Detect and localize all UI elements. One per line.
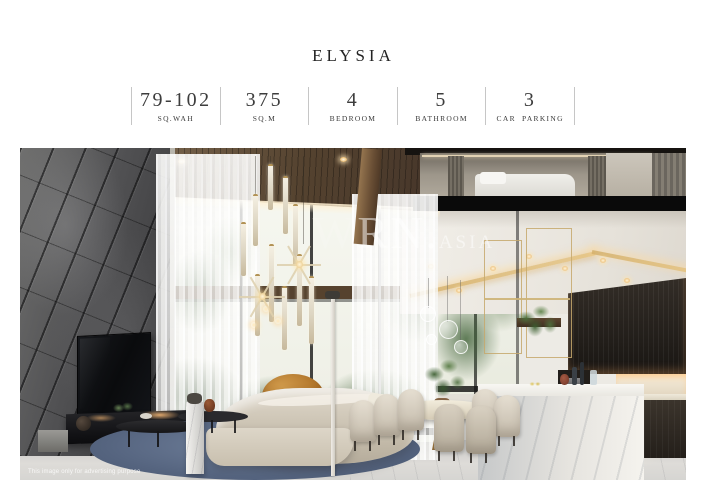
floor-lamp-head <box>325 291 340 299</box>
decor-vase <box>76 416 91 431</box>
island-bottle <box>572 367 577 385</box>
pedestal-sculpture <box>187 393 202 404</box>
spec-label: BEDROOM <box>330 114 377 123</box>
island-decanter <box>560 374 569 385</box>
coffee-table-legs <box>128 431 190 447</box>
mezzanine-curtain <box>588 156 606 200</box>
spec-label: BATHROOM <box>415 114 468 123</box>
fruit-bowl <box>528 381 542 387</box>
chandelier-glow <box>275 318 281 324</box>
chair-legs <box>470 453 492 463</box>
chandelier-glass-tube <box>268 164 273 210</box>
dining-chair <box>434 404 464 452</box>
island-carafe <box>590 370 597 385</box>
spec-value: 3 <box>524 90 537 110</box>
mezzanine-curtain <box>652 153 686 201</box>
glass-bubble-pendant <box>426 334 437 345</box>
ceiling-spotlight <box>600 258 606 263</box>
spec-label: SQ.WAH <box>158 114 194 123</box>
chair-legs <box>354 441 372 451</box>
chandelier-glass-tube <box>309 276 314 344</box>
chandelier-glow <box>251 322 257 328</box>
spec-bar: 79-102 SQ.WAH 375 SQ.M 4 BEDROOM 5 BATHR… <box>131 87 575 125</box>
listing-page: ELYSIA 79-102 SQ.WAH 375 SQ.M 4 BEDROOM … <box>0 0 707 500</box>
chandelier-bulb <box>259 293 266 300</box>
dining-chair <box>466 406 496 454</box>
dining-chair <box>398 389 424 431</box>
spec-label: SQ.M <box>253 114 276 123</box>
page-title: ELYSIA <box>0 46 707 66</box>
watermark-large-text: RN. <box>357 206 438 259</box>
glass-bubble-pendant <box>420 306 436 322</box>
pendant-wire <box>460 280 461 340</box>
marble-pedestal <box>186 402 204 474</box>
watermark-small-text: ASIA <box>439 232 495 254</box>
mezzanine-curtain <box>448 156 464 200</box>
ceiling-spotlight <box>456 288 462 293</box>
bed-pillow <box>480 172 506 184</box>
floor-lamp <box>331 298 335 476</box>
recessed-downlight <box>340 157 347 162</box>
ceiling-spotlight <box>624 278 630 283</box>
watermark-ghost-letter: W <box>312 206 357 259</box>
spec-area-sqwah: 79-102 SQ.WAH <box>131 87 220 125</box>
stone-plinth <box>38 430 68 452</box>
chair-legs <box>378 435 396 445</box>
chandelier-glow <box>263 306 269 312</box>
chair-legs <box>498 436 516 446</box>
spec-car-parking: 3 CAR PARKING <box>485 87 575 125</box>
spec-bedroom: 4 BEDROOM <box>308 87 397 125</box>
spec-value: 375 <box>246 90 284 110</box>
spec-bathroom: 5 BATHROOM <box>397 87 486 125</box>
mezzanine-wall-panel <box>606 153 652 201</box>
spec-label: CAR PARKING <box>497 114 564 123</box>
island-bottle <box>580 362 584 385</box>
pendant-wire <box>447 276 448 322</box>
chandelier-glass-tube <box>253 194 258 246</box>
table-vase <box>204 399 215 412</box>
chair-legs <box>438 451 460 461</box>
watermark: W RN. ASIA <box>312 206 495 259</box>
spec-value: 79-102 <box>140 90 212 110</box>
glass-bubble-pendant <box>439 320 458 339</box>
table-bowl <box>140 413 152 419</box>
chandelier-glass-tube <box>241 222 246 276</box>
chandelier-wire <box>303 156 304 244</box>
spec-area-sqm: 375 SQ.M <box>220 87 309 125</box>
chandelier-glass-tube <box>283 176 288 234</box>
pendant-wire <box>428 278 429 308</box>
property-photo[interactable]: W RN. ASIA This image only for advertisi… <box>20 148 686 480</box>
kitchen-upper-cabinets <box>568 278 686 374</box>
chair-legs <box>402 430 420 440</box>
decor-plant <box>112 400 134 416</box>
spec-value: 4 <box>347 90 360 110</box>
dining-chair <box>374 394 400 436</box>
photo-caption: This image only for advertising purpose <box>28 469 141 475</box>
spec-value: 5 <box>435 90 448 110</box>
tv-reflection <box>80 337 110 409</box>
hanging-shelf-frame <box>526 228 572 358</box>
shelf-trailing-plant <box>508 294 568 338</box>
dining-chair <box>494 395 520 437</box>
dining-chair <box>350 400 376 442</box>
chandelier-bulb <box>296 261 303 268</box>
